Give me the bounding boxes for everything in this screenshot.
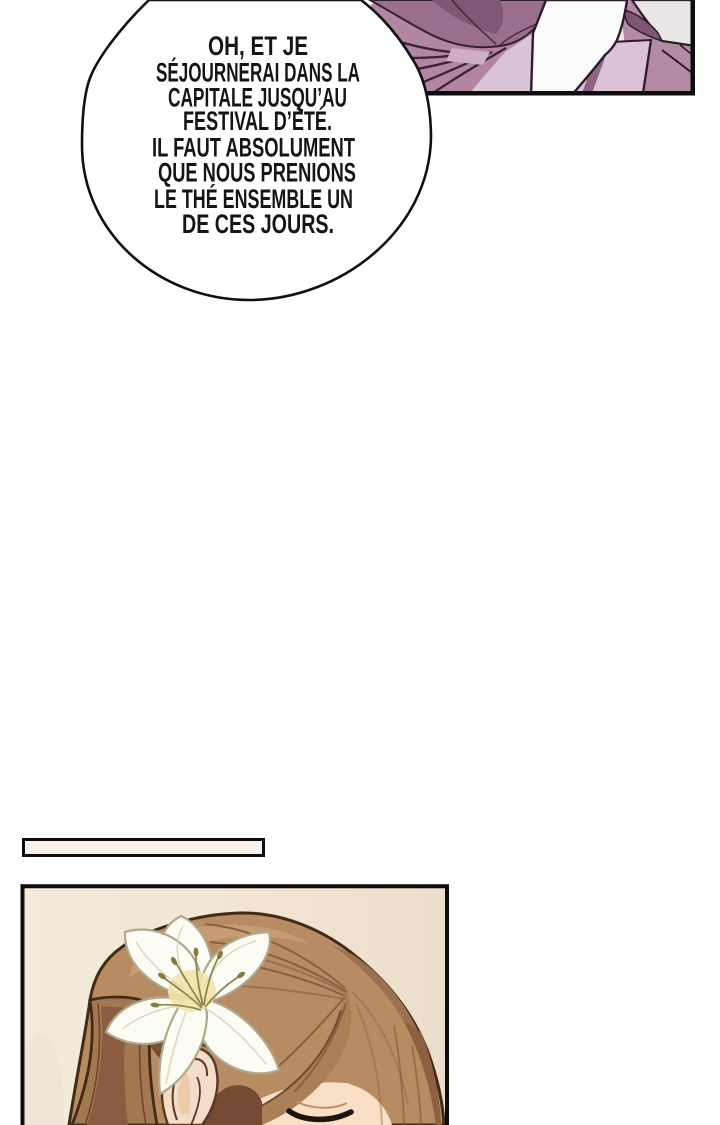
svg-text:OH, ET JE: OH, ET JE (208, 31, 308, 61)
svg-text:QUE NOUS PRENIONS: QUE NOUS PRENIONS (158, 158, 356, 188)
svg-text:FESTIVAL D’ÉTÉ.: FESTIVAL D’ÉTÉ. (183, 105, 332, 136)
svg-text:DE CES JOURS.: DE CES JOURS. (182, 209, 334, 239)
